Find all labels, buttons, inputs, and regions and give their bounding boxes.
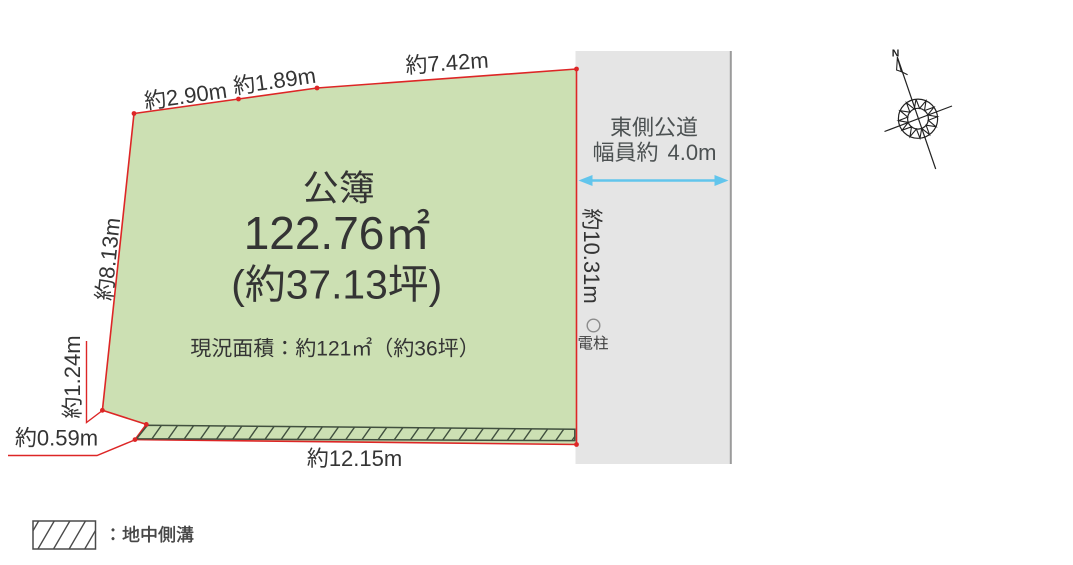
svg-text:N: N (892, 48, 900, 60)
svg-text:10.31m: 10.31m (579, 230, 604, 303)
svg-text:1.24m: 1.24m (60, 335, 85, 396)
svg-text:122.76: 122.76 (244, 207, 385, 259)
svg-text:12.15m: 12.15m (329, 446, 402, 471)
svg-text:(: ( (231, 262, 245, 308)
svg-text:4.0m: 4.0m (668, 140, 717, 165)
svg-text:37.13: 37.13 (286, 262, 388, 308)
svg-text:0.59m: 0.59m (37, 425, 98, 450)
svg-text:121: 121 (316, 338, 351, 361)
svg-text:36: 36 (414, 338, 437, 361)
svg-text:): ) (429, 262, 443, 308)
svg-text:7.42m: 7.42m (427, 48, 490, 77)
